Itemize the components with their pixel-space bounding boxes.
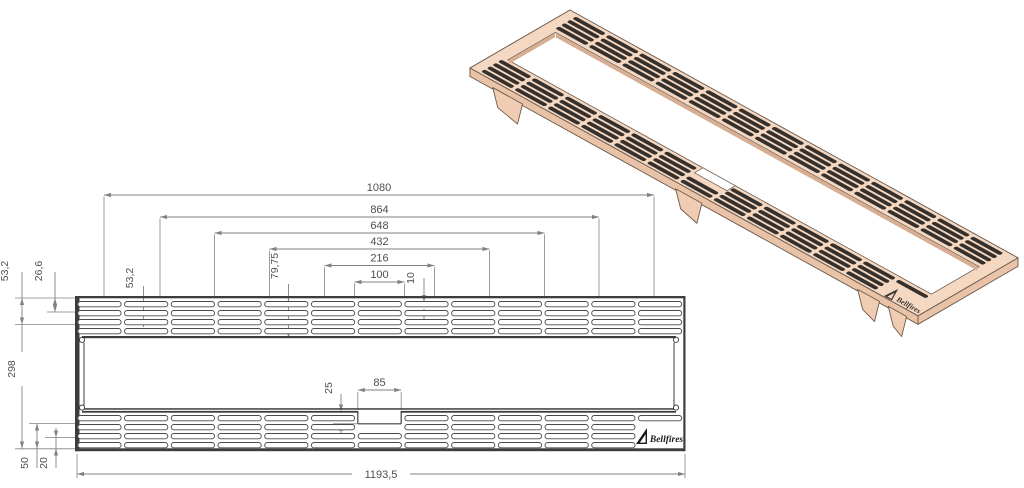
dim-label-notch-width: 85: [373, 377, 385, 389]
dim-label-bottom-row: 20: [38, 457, 50, 469]
dim-label-top-2: 648: [370, 220, 388, 232]
dim-label-overall-height: 298: [6, 360, 18, 378]
isometric-view-part: Bellfires: [470, 10, 1018, 337]
dim-label-notch-depth: 25: [323, 382, 335, 394]
brand-logo-text: Bellfires: [649, 435, 684, 445]
dim-label-inner-band: 53,2: [124, 268, 136, 289]
dim-label-bottom-band: 50: [19, 457, 31, 469]
part-top-face: [470, 10, 1018, 316]
dim-label-opening-offset: 79,75: [269, 253, 281, 279]
slot-grid: [78, 302, 682, 448]
dim-label-top-0: 1080: [367, 182, 391, 194]
dim-label-overall-length: 1193,5: [365, 469, 398, 481]
dim-label-band-height: 53,2: [0, 261, 11, 282]
front-view-part: Bellfires: [75, 296, 686, 451]
cad-drawing-page: 10808646484322161001053,229826,6502053,2…: [0, 0, 1024, 488]
dim-label-top-4: 216: [370, 253, 388, 265]
dim-label-top-5: 100: [370, 269, 388, 281]
cad-canvas: 10808646484322161001053,229826,6502053,2…: [0, 0, 1024, 488]
dim-label-top-3: 432: [370, 236, 388, 248]
dim-label-slot-pitch: 10: [405, 272, 417, 284]
dim-label-row-offset: 26,6: [33, 261, 45, 282]
brand-logo-2d: Bellfires: [636, 428, 683, 445]
dim-label-top-1: 864: [370, 204, 388, 216]
